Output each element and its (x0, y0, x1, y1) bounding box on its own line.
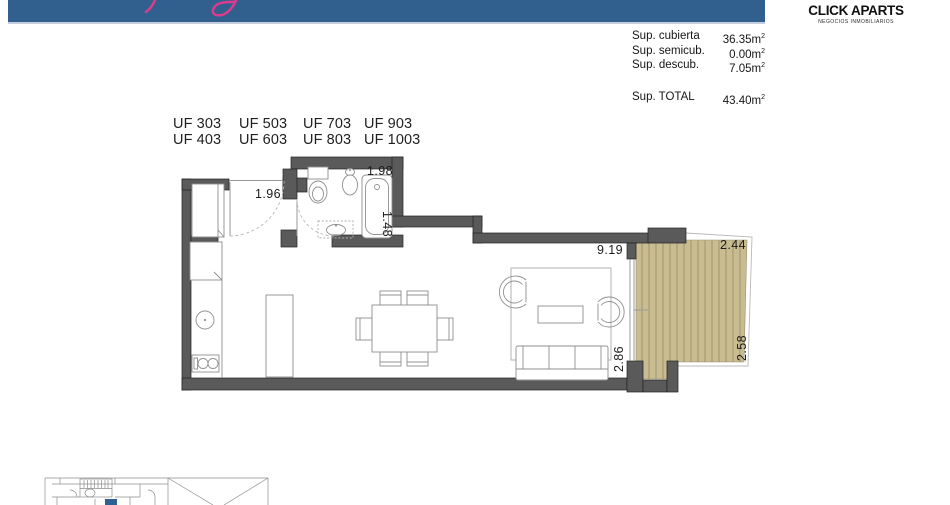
dining-chair (437, 318, 453, 340)
dining-chair (407, 352, 428, 366)
toilet (308, 167, 328, 203)
dining-chair (380, 352, 401, 366)
dining-chair (356, 318, 372, 340)
dim-entry: 1.96 (255, 187, 281, 201)
dining-set (356, 291, 453, 366)
header-script-strokes (146, 0, 236, 15)
entry-closet (192, 184, 224, 237)
dim-bath-height: 1.48 (380, 211, 394, 237)
dining-chair (407, 291, 428, 305)
fridge (190, 242, 222, 280)
bidet (343, 169, 358, 196)
keyplan-unit-highlight (105, 499, 117, 505)
floorplan-drawing (0, 0, 950, 505)
dining-chair (380, 291, 401, 305)
furniture (190, 184, 624, 380)
keyplan-diagonal (224, 478, 268, 505)
coffee-table (538, 306, 583, 323)
kitchen-island (266, 295, 293, 377)
keyplan-diagonal (168, 478, 213, 505)
dim-living-height: 2.86 (612, 346, 626, 372)
cooktop (192, 355, 219, 372)
dim-deck-height: 2.58 (735, 335, 749, 361)
armchair-left (499, 276, 526, 308)
floorplan-page: CLICK APARTS NEGOCIOS INMOBILIARIOS Sup.… (0, 0, 950, 505)
keyplan-stair (80, 479, 112, 497)
dim-living-width: 9.19 (597, 243, 623, 257)
bath-door-swing (297, 199, 334, 236)
key-plan (45, 478, 268, 505)
dim-deck-width: 2.44 (720, 238, 746, 252)
dining-table (372, 305, 437, 352)
sofa (516, 346, 608, 380)
dim-bath-width: 1.98 (367, 164, 393, 178)
kitchen-sink (196, 311, 214, 329)
